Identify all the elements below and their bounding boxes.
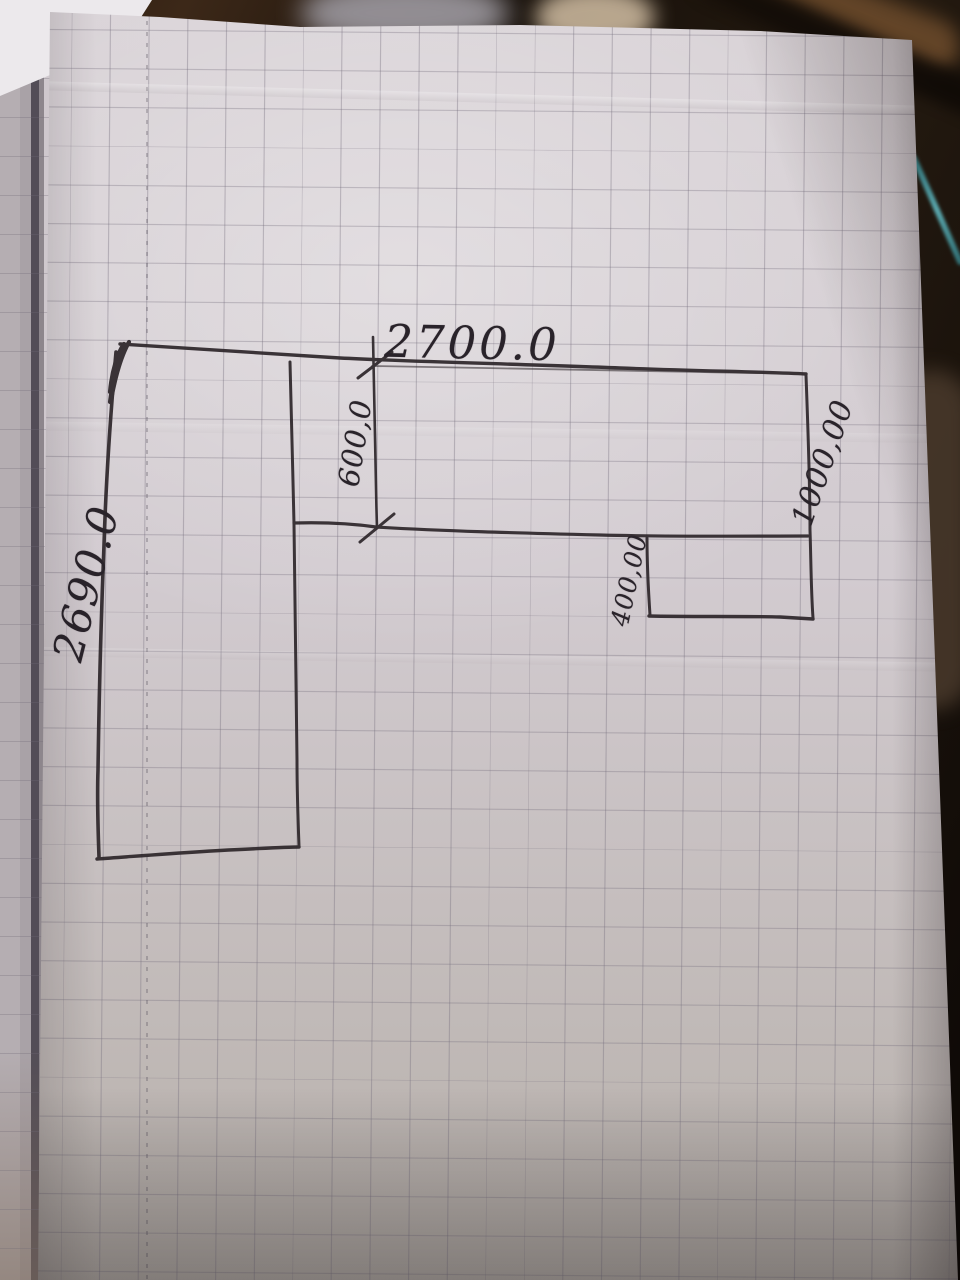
hand-drawn-sketch <box>0 0 960 1280</box>
photo-scene: 2700.0 2690.0 600,0 1000,00 400,00 <box>0 0 960 1280</box>
sketch-left-leg-right-edge <box>290 362 299 846</box>
sketch-left-leg-bottom <box>97 847 299 859</box>
dimension-label-top-width: 2700.0 <box>384 315 561 372</box>
sketch-notch-bottom-edge <box>649 616 813 619</box>
notebook-page: 2700.0 2690.0 600,0 1000,00 400,00 <box>0 0 960 1280</box>
